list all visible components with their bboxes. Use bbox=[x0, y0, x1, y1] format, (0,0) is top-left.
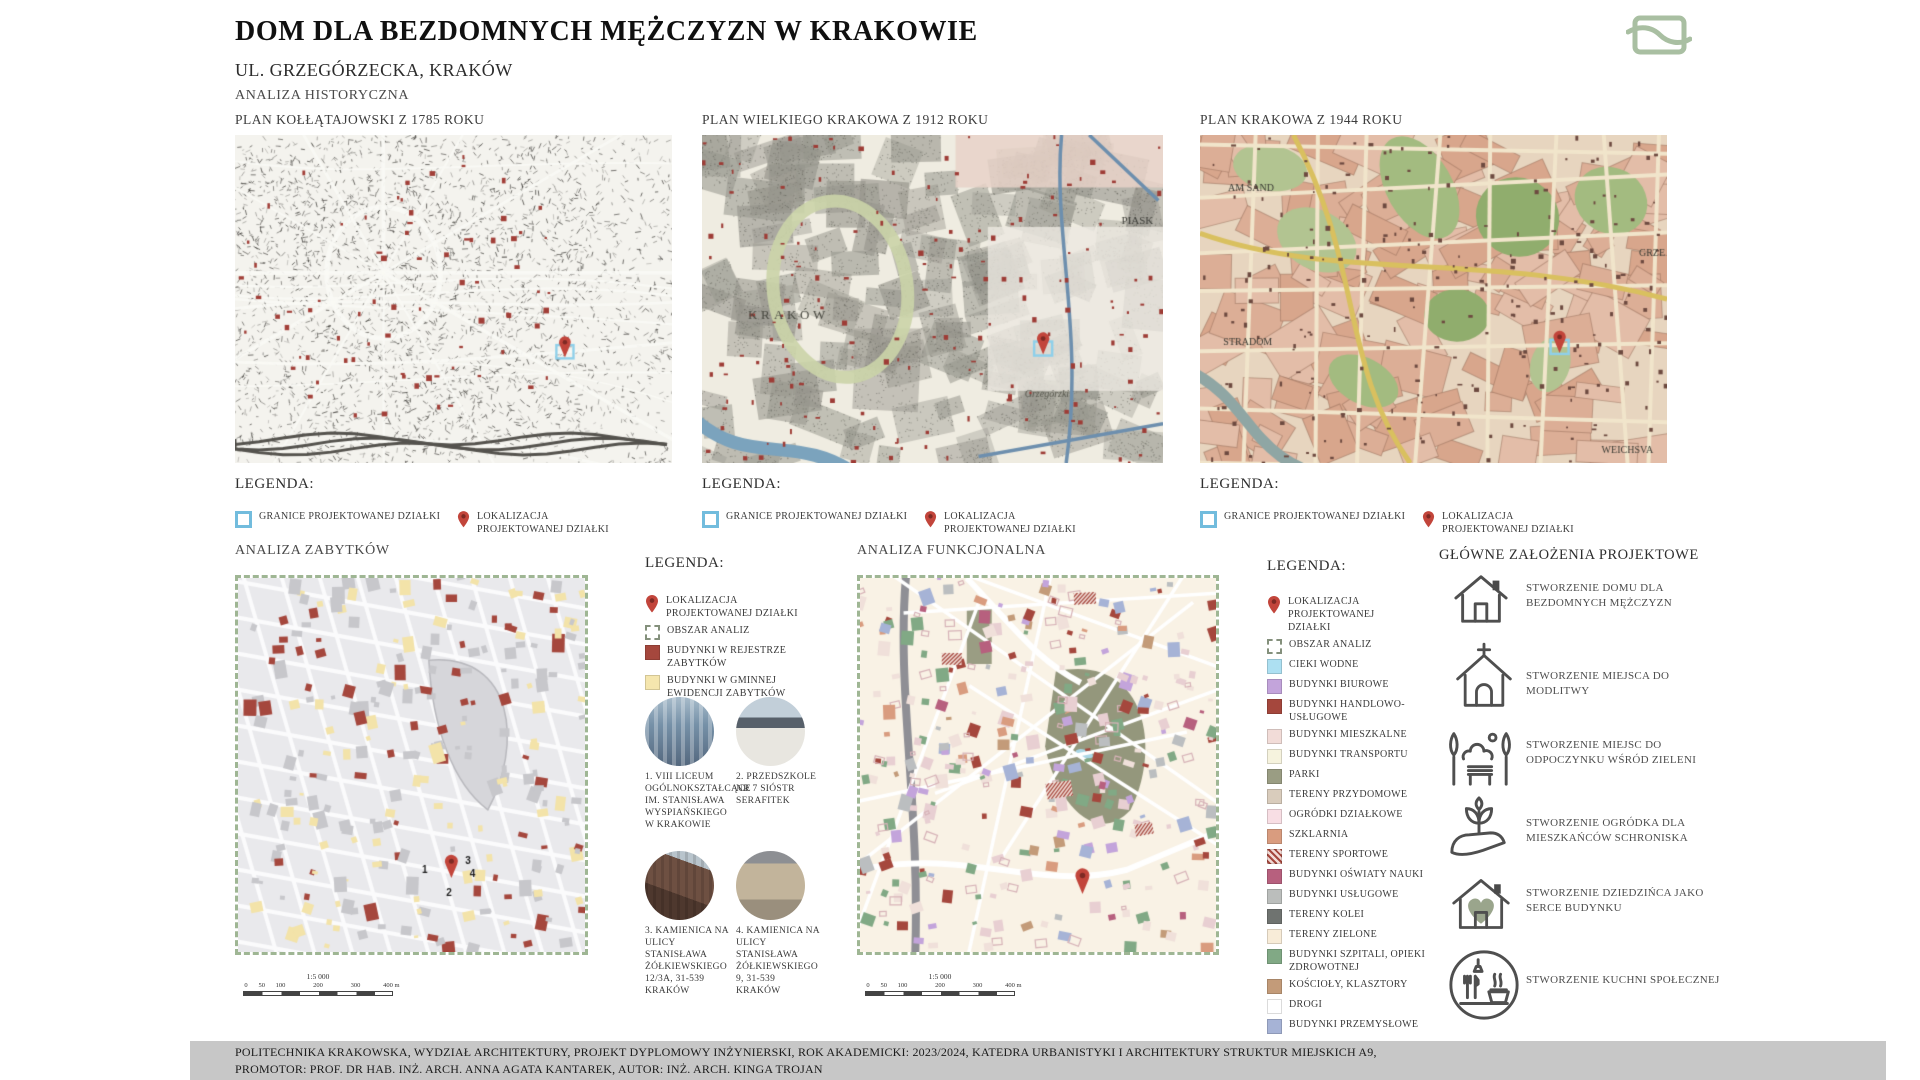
location-pin-icon bbox=[1422, 510, 1435, 528]
legend-item: BUDYNKI MIESZKALNE bbox=[1267, 728, 1449, 744]
color-swatch bbox=[1267, 659, 1282, 674]
zalozenia-item-label: STWORZENIE MIEJSC DO ODPOCZYNKU WŚRÓD ZI… bbox=[1526, 738, 1726, 769]
photo-caption: 3. KAMIENICA NA ULICY STANISŁAWA ŻÓŁKIEW… bbox=[645, 926, 731, 998]
legend-title: LEGENDA: bbox=[235, 476, 672, 493]
legend-item-register: BUDYNKI W REJESTRZE ZABYTKÓW bbox=[645, 644, 837, 670]
map-title-1912: PLAN WIELKIEGO KRAKOWA Z 1912 ROKU bbox=[702, 112, 988, 128]
color-swatch bbox=[1267, 979, 1282, 994]
legend-item: KOŚCIOŁY, KLASZTORY bbox=[1267, 978, 1449, 994]
historical-map-1944 bbox=[1200, 135, 1667, 463]
location-pin-icon bbox=[645, 594, 659, 613]
location-pin-icon bbox=[1267, 595, 1281, 614]
color-swatch bbox=[1267, 769, 1282, 784]
legend-item: BUDYNKI OŚWIATY NAUKI bbox=[1267, 868, 1449, 884]
house-icon bbox=[1450, 569, 1512, 632]
photo-cell-1: 1. VIII LICEUM OGÓLNOKSZTAŁCĄCE IM. STAN… bbox=[645, 697, 731, 832]
legend-item-sport: TERENY SPORTOWE bbox=[1267, 848, 1449, 864]
scale-tick-labels: 0 50 100 200 300 400 m bbox=[243, 982, 393, 991]
color-swatch bbox=[1267, 789, 1282, 804]
zalozenia-item-label: STWORZENIE KUCHNI SPOŁECZNEJ bbox=[1526, 973, 1726, 988]
funkcjonalna-legend: LEGENDA: LOKALIZACJA PROJEKTOWANEJ DZIAŁ… bbox=[1267, 558, 1449, 1038]
legend-item-label: LOKALIZACJA PROJEKTOWANEJ DZIAŁKI bbox=[1442, 510, 1584, 536]
legend-item: TERENY KOLEI bbox=[1267, 908, 1449, 924]
poster-board: DOM DLA BEZDOMNYCH MĘŻCZYZN W KRAKOWIE U… bbox=[0, 0, 1920, 1080]
legend-item: DROGI bbox=[1267, 998, 1449, 1014]
location-pin-icon bbox=[457, 510, 470, 528]
scale-tick-labels: 0 50 100 200 300 400 m bbox=[865, 982, 1015, 991]
photo-przedszkole bbox=[736, 697, 805, 766]
wave-frame-logo-icon bbox=[1626, 12, 1692, 58]
green-rest-icon bbox=[1444, 724, 1516, 793]
location-pin-icon bbox=[924, 510, 937, 528]
zabytki-scale-bar: 1:5 000 0 50 100 200 300 400 m bbox=[243, 972, 393, 996]
section-label-zabytki: ANALIZA ZABYTKÓW bbox=[235, 543, 390, 559]
color-swatch bbox=[1267, 869, 1282, 884]
color-swatch bbox=[1267, 889, 1282, 904]
photo-kamienica-9 bbox=[736, 851, 805, 920]
legend-item: OGRÓDKI DZIAŁKOWE bbox=[1267, 808, 1449, 824]
legend-item: BUDYNKI BIUROWE bbox=[1267, 678, 1449, 694]
evidence-swatch bbox=[645, 675, 660, 690]
section-label-zalozenia: GŁÓWNE ZAŁOŻENIA PROJEKTOWE bbox=[1439, 547, 1699, 564]
photo-kamienica-12 bbox=[645, 851, 714, 920]
zalozenia-item-label: STWORZENIE DOMU DLA BEZDOMNYCH MĘŻCZYZN bbox=[1526, 581, 1726, 612]
register-swatch bbox=[645, 645, 660, 660]
historical-map-1912 bbox=[702, 135, 1163, 463]
color-swatch bbox=[1267, 829, 1282, 844]
color-swatch bbox=[1267, 679, 1282, 694]
color-swatch bbox=[1267, 929, 1282, 944]
zalozenia-item-label: STWORZENIE DZIEDZIŃCA JAKO SERCE BUDYNKU bbox=[1526, 886, 1726, 917]
boundary-square-icon bbox=[1200, 511, 1217, 528]
legend-item: TERENY ZIELONE bbox=[1267, 928, 1449, 944]
legend-item: CIEKI WODNE bbox=[1267, 658, 1449, 674]
legend-item: BUDYNKI PRZEMYSŁOWE bbox=[1267, 1018, 1449, 1034]
color-swatch bbox=[1267, 749, 1282, 764]
hatch-swatch bbox=[1267, 849, 1282, 864]
legend-item: PARKI bbox=[1267, 768, 1449, 784]
photo-caption: 1. VIII LICEUM OGÓLNOKSZTAŁCĄCE IM. STAN… bbox=[645, 772, 731, 832]
community-kitchen-icon bbox=[1446, 947, 1522, 1028]
photo-caption: 4. KAMIENICA NA ULICY STANISŁAWA ŻÓŁKIEW… bbox=[736, 926, 822, 998]
legend-map-1785: LEGENDA: GRANICE PROJEKTOWANEJ DZIAŁKI L… bbox=[235, 476, 672, 540]
footer-line-1: POLITECHNIKA KRAKOWSKA, WYDZIAŁ ARCHITEK… bbox=[235, 1045, 1377, 1060]
page-title: DOM DLA BEZDOMNYCH MĘŻCZYZN W KRAKOWIE bbox=[235, 16, 978, 48]
hand-plant-icon bbox=[1446, 796, 1512, 867]
color-swatch bbox=[1267, 909, 1282, 924]
legend-item: TERENY PRZYDOMOWE bbox=[1267, 788, 1449, 804]
legend-item-boundary: GRANICE PROJEKTOWANEJ DZIAŁKI bbox=[235, 510, 457, 528]
color-swatch bbox=[1267, 949, 1282, 964]
photo-caption: 2. PRZEDSZKOLE NR 7 SIÓSTR SERAFITEK bbox=[736, 772, 822, 808]
photo-cell-2: 2. PRZEDSZKOLE NR 7 SIÓSTR SERAFITEK bbox=[736, 697, 822, 808]
photo-cell-4: 4. KAMIENICA NA ULICY STANISŁAWA ŻÓŁKIEW… bbox=[736, 851, 822, 998]
legend-title: LEGENDA: bbox=[645, 555, 837, 572]
color-swatch bbox=[1267, 1019, 1282, 1034]
analysis-area-icon bbox=[645, 625, 660, 640]
boundary-square-icon bbox=[702, 511, 719, 528]
legend-item: BUDYNKI USŁUGOWE bbox=[1267, 888, 1449, 904]
color-swatch bbox=[1267, 699, 1282, 714]
zalozenia-item-label: STWORZENIE MIEJSCA DO MODLITWY bbox=[1526, 669, 1726, 700]
map-title-1785: PLAN KOŁŁĄTAJOWSKI Z 1785 ROKU bbox=[235, 112, 484, 128]
zabytki-legend: LEGENDA: LOKALIZACJA PROJEKTOWANEJ DZIAŁ… bbox=[645, 555, 837, 704]
legend-item-boundary: GRANICE PROJEKTOWANEJ DZIAŁKI bbox=[1200, 510, 1422, 528]
scale-ruler bbox=[865, 991, 1015, 996]
photo-cell-3: 3. KAMIENICA NA ULICY STANISŁAWA ŻÓŁKIEW… bbox=[645, 851, 731, 998]
color-swatch bbox=[1267, 809, 1282, 824]
legend-item-location: LOKALIZACJA PROJEKTOWANEJ DZIAŁKI bbox=[924, 510, 1086, 536]
funkcjonalna-map bbox=[860, 578, 1216, 952]
legend-title: LEGENDA: bbox=[1267, 558, 1449, 575]
section-label-historical: ANALIZA HISTORYCZNA bbox=[235, 88, 409, 104]
house-heart-icon bbox=[1450, 874, 1512, 939]
zabytki-map-frame bbox=[235, 575, 588, 955]
page-subtitle: UL. GRZEGÓRZECKA, KRAKÓW bbox=[235, 60, 513, 81]
scale-ruler bbox=[243, 991, 393, 996]
legend-item-location: LOKALIZACJA PROJEKTOWANEJ DZIAŁKI bbox=[645, 594, 837, 620]
legend-map-1944: LEGENDA: GRANICE PROJEKTOWANEJ DZIAŁKI L… bbox=[1200, 476, 1667, 540]
legend-item-boundary: GRANICE PROJEKTOWANEJ DZIAŁKI bbox=[702, 510, 924, 528]
legend-map-1912: LEGENDA: GRANICE PROJEKTOWANEJ DZIAŁKI L… bbox=[702, 476, 1163, 540]
boundary-square-icon bbox=[235, 511, 252, 528]
color-swatch bbox=[1267, 729, 1282, 744]
legend-item-location: LOKALIZACJA PROJEKTOWANEJ DZIAŁKI bbox=[1422, 510, 1584, 536]
color-swatch bbox=[1267, 999, 1282, 1014]
funkcjonalna-map-frame bbox=[857, 575, 1219, 955]
zabytki-map bbox=[238, 578, 585, 952]
legend-item-label: GRANICE PROJEKTOWANEJ DZIAŁKI bbox=[1224, 510, 1405, 523]
legend-item: BUDYNKI HANDLOWO-USŁUGOWE bbox=[1267, 698, 1449, 724]
funkcjonalna-scale-bar: 1:5 000 0 50 100 200 300 400 m bbox=[865, 972, 1015, 996]
legend-item-label: LOKALIZACJA PROJEKTOWANEJ DZIAŁKI bbox=[477, 510, 619, 536]
church-icon bbox=[1452, 641, 1516, 720]
scale-ratio: 1:5 000 bbox=[243, 972, 393, 981]
footer-line-2: PROMOTOR: PROF. DR HAB. INŻ. ARCH. ANNA … bbox=[235, 1062, 823, 1077]
legend-title: LEGENDA: bbox=[702, 476, 1163, 493]
legend-item-location: LOKALIZACJA PROJEKTOWANEJ DZIAŁKI bbox=[1267, 595, 1449, 634]
legend-title: LEGENDA: bbox=[1200, 476, 1667, 493]
legend-item-analysis-area: OBSZAR ANALIZ bbox=[645, 624, 837, 640]
legend-item: SZKLARNIA bbox=[1267, 828, 1449, 844]
footer-bar: POLITECHNIKA KRAKOWSKA, WYDZIAŁ ARCHITEK… bbox=[190, 1041, 1886, 1080]
map-title-1944: PLAN KRAKOWA Z 1944 ROKU bbox=[1200, 112, 1403, 128]
zalozenia-item-label: STWORZENIE OGRÓDKA DLA MIESZKAŃCÓW SCHRO… bbox=[1526, 816, 1726, 847]
legend-item-label: GRANICE PROJEKTOWANEJ DZIAŁKI bbox=[726, 510, 907, 523]
legend-item-label: GRANICE PROJEKTOWANEJ DZIAŁKI bbox=[259, 510, 440, 523]
photo-liceum bbox=[645, 697, 714, 766]
section-label-funkcjonalna: ANALIZA FUNKCJONALNA bbox=[857, 543, 1046, 559]
legend-item: BUDYNKI TRANSPORTU bbox=[1267, 748, 1449, 764]
legend-item: BUDYNKI SZPITALI, OPIEKI ZDROWOTNEJ bbox=[1267, 948, 1449, 974]
scale-ratio: 1:5 000 bbox=[865, 972, 1015, 981]
legend-item-label: LOKALIZACJA PROJEKTOWANEJ DZIAŁKI bbox=[944, 510, 1086, 536]
legend-item-analysis-area: OBSZAR ANALIZ bbox=[1267, 638, 1449, 654]
legend-item-location: LOKALIZACJA PROJEKTOWANEJ DZIAŁKI bbox=[457, 510, 619, 536]
analysis-area-icon bbox=[1267, 639, 1282, 654]
historical-map-1785 bbox=[235, 135, 672, 463]
studio-logo bbox=[1626, 12, 1692, 63]
